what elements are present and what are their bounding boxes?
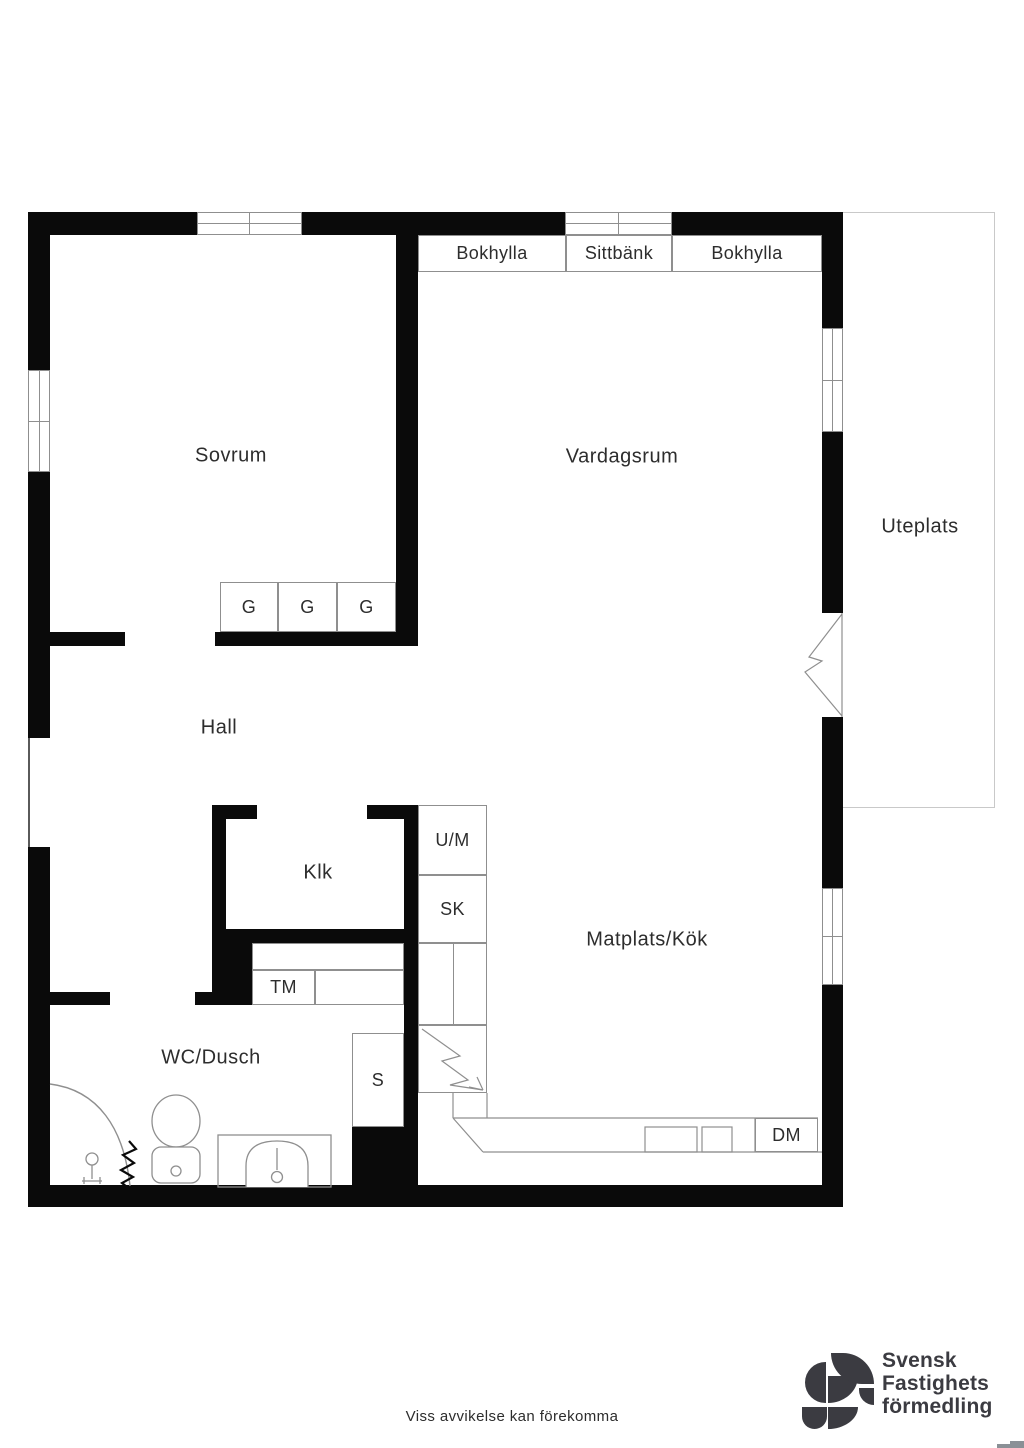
shower-curtain-icon (121, 1141, 136, 1187)
window-symbol (822, 888, 843, 985)
wall-segment (212, 805, 226, 1005)
floorplan-page: Bokhylla Sittbänk Bokhylla G G G U/M SK … (0, 0, 1024, 1448)
wall-segment (396, 235, 418, 646)
room-label-uteplats: Uteplats (881, 516, 958, 539)
wall-segment (28, 472, 50, 738)
wardrobe-1: G (220, 582, 278, 632)
wall-segment (252, 929, 404, 943)
fixture-label: U/M (435, 830, 469, 851)
wall-segment (822, 212, 843, 328)
wall-segment (50, 992, 110, 1005)
washer-tm: TM (252, 970, 315, 1005)
wall-segment (195, 992, 212, 1005)
brand-line: Fastighets (882, 1372, 993, 1395)
wall-segment (28, 1185, 843, 1207)
fixture-label: G (300, 597, 314, 618)
wall-segment (50, 632, 125, 646)
fixture-label: Sittbänk (585, 243, 653, 264)
shower-icon (50, 1084, 130, 1186)
window-symbol (28, 370, 50, 472)
fixture-label: S (372, 1070, 384, 1091)
fixture-label: TM (270, 977, 297, 998)
room-label-hall: Hall (201, 717, 237, 740)
room-label-wc-dusch: WC/Dusch (161, 1047, 261, 1070)
brand-line: förmedling (882, 1395, 993, 1418)
wall-segment (672, 212, 843, 235)
cabinet-sk: SK (418, 875, 487, 943)
window-symbol (197, 212, 302, 235)
wall-segment (226, 929, 252, 1005)
sink-icon (218, 1135, 331, 1187)
fixture-label: Bokhylla (711, 243, 782, 264)
brand-line: Svensk (882, 1349, 993, 1372)
corner-mark (1010, 1441, 1024, 1448)
fixture-label: DM (772, 1125, 801, 1146)
wall-segment (28, 212, 50, 370)
dishwasher-dm: DM (755, 1118, 818, 1152)
sittbank: Sittbänk (566, 235, 672, 272)
counter-shelf (315, 970, 404, 1005)
wall-segment (302, 212, 565, 235)
room-label-sovrum: Sovrum (195, 445, 267, 468)
stove-box (418, 1025, 487, 1093)
room-label-matplats-kok: Matplats/Kök (586, 929, 708, 952)
wall-segment (822, 432, 843, 613)
fixture-label: G (242, 597, 256, 618)
uteplats-area (843, 212, 995, 808)
entry-opening (28, 738, 30, 847)
fixture-label: G (359, 597, 373, 618)
wall-segment (352, 1127, 418, 1185)
room-label-vardagsrum: Vardagsrum (566, 446, 678, 469)
window-symbol (565, 212, 672, 235)
fixture-label: SK (440, 899, 465, 920)
toilet-icon (152, 1095, 200, 1183)
fixture-label: Bokhylla (456, 243, 527, 264)
floor-drain-icon (82, 1153, 102, 1184)
corner-mark (997, 1444, 1010, 1448)
room-label-klk: Klk (303, 862, 332, 885)
washer-um: U/M (418, 805, 487, 875)
wall-segment (822, 717, 843, 888)
balcony-door-icon (805, 613, 842, 717)
counter-shelf (252, 943, 404, 970)
wall-segment (215, 632, 418, 646)
sf-logo-icon (802, 1353, 876, 1429)
brand-name: Svensk Fastighets förmedling (882, 1349, 993, 1418)
wall-segment (822, 985, 843, 1207)
wall-segment (212, 805, 257, 819)
window-symbol (822, 328, 843, 432)
counter-section (418, 943, 487, 1025)
wardrobe-3: G (337, 582, 396, 632)
wardrobe-2: G (278, 582, 337, 632)
bokhylla-left: Bokhylla (418, 235, 566, 272)
wall-segment (28, 212, 197, 235)
cleaning-cabinet-s: S (352, 1033, 404, 1127)
wall-segment (28, 847, 50, 1207)
bokhylla-right: Bokhylla (672, 235, 822, 272)
